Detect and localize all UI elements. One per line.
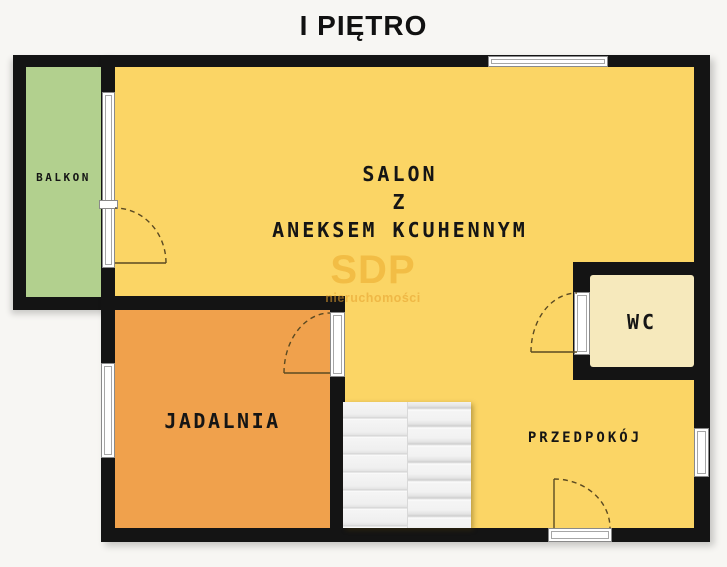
room-label-salon: SALON Z ANEKSEM KCUHENNYM [240, 160, 560, 244]
jadalnia-door-frame-pane [333, 315, 342, 374]
top-window [488, 56, 608, 67]
stair-flight-left [343, 402, 407, 528]
staircase [343, 402, 470, 528]
page-title: I PIĘTRO [0, 10, 727, 42]
jadalnia-top-wall [115, 296, 345, 310]
salon-label-line1: SALON [240, 160, 560, 188]
salon-label-line2: Z [240, 188, 560, 216]
jadalnia-door-frame [330, 312, 345, 377]
entrance-door-frame-pane [551, 531, 609, 539]
room-label-przedpokoj: PRZEDPOKÓJ [505, 430, 665, 446]
balcony-glazing-pane [105, 95, 112, 265]
balcony-glazing [102, 92, 115, 268]
left-window [101, 363, 115, 458]
right-window [694, 428, 709, 477]
floor-plan: I PIĘTRO BALKON SALON [0, 0, 727, 567]
right-window-pane [697, 431, 706, 474]
room-label-wc: WC [590, 310, 694, 334]
room-label-jadalnia: JADALNIA [115, 409, 330, 433]
top-window-pane [491, 59, 605, 64]
wc-door-frame [574, 292, 590, 355]
salon-label-line3: ANEKSEM KCUHENNYM [240, 216, 560, 244]
stair-flight-right [407, 402, 471, 528]
room-label-balkon: BALKON [26, 171, 101, 184]
wc-door-frame-pane [577, 295, 587, 352]
balcony-glazing-divider [99, 200, 118, 209]
left-window-pane [104, 366, 112, 455]
entrance-door-frame [548, 528, 612, 542]
